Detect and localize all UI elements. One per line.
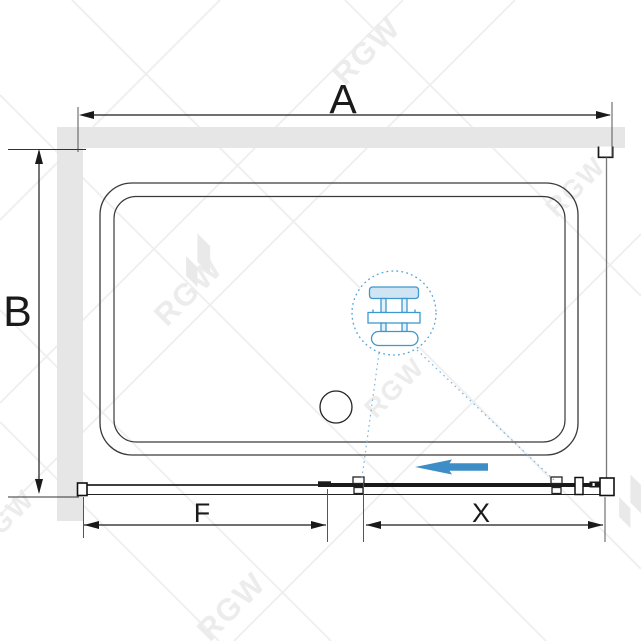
watermark-text: RGW [359,352,431,424]
dim-a-arrow-left [79,111,94,119]
roller-post [402,323,407,332]
roller-mechanism [368,287,420,346]
roller-post [381,323,386,332]
door-handle [575,478,583,495]
watermark-line [234,234,641,641]
watermark-line [0,310,331,641]
door-assembly [78,477,615,496]
dim-label-f: F [194,498,211,528]
watermark-line [0,0,220,220]
left-wall [57,127,83,521]
left-wall-bracket [78,483,88,496]
roller-post [381,299,386,313]
top-wall [57,127,625,148]
shower-enclosure-top-view-diagram: RGW RGW RGW RGW RGW RGW [0,0,641,641]
roller-post [402,299,407,313]
right-wall-end-profile [599,147,613,158]
dim-f-arrow-right [311,521,326,529]
watermark-text: RGW [0,484,41,556]
dim-label-a: A [329,76,357,122]
dim-label-x: X [472,498,490,528]
walls [57,127,625,521]
roller-middle-bar [368,313,420,324]
roller-wheel-capsule [372,332,419,346]
roller-detail-callout [352,271,554,481]
roller-top-bar [370,287,419,299]
right-wall-profile [600,478,614,496]
door-end-cap [318,481,331,484]
watermark-layer: RGW RGW RGW RGW RGW RGW [0,0,641,641]
dim-x-arrow-left [366,521,381,529]
door-closer-clamp [590,482,601,488]
watermark-diagonal-lines [0,0,641,641]
watermark-text: RGW [540,151,612,223]
watermark-text: RGW [190,565,273,641]
dim-f-arrow-left [84,521,99,529]
dim-b-arrow-bottom [35,479,43,494]
slide-direction-arrow-icon [415,460,488,475]
dim-b-arrow-top [35,149,43,164]
dim-label-b: B [3,288,32,336]
door-closer-clamp-slit [593,483,595,486]
dim-a-arrow-right [596,111,611,119]
drain-hole [320,391,352,423]
